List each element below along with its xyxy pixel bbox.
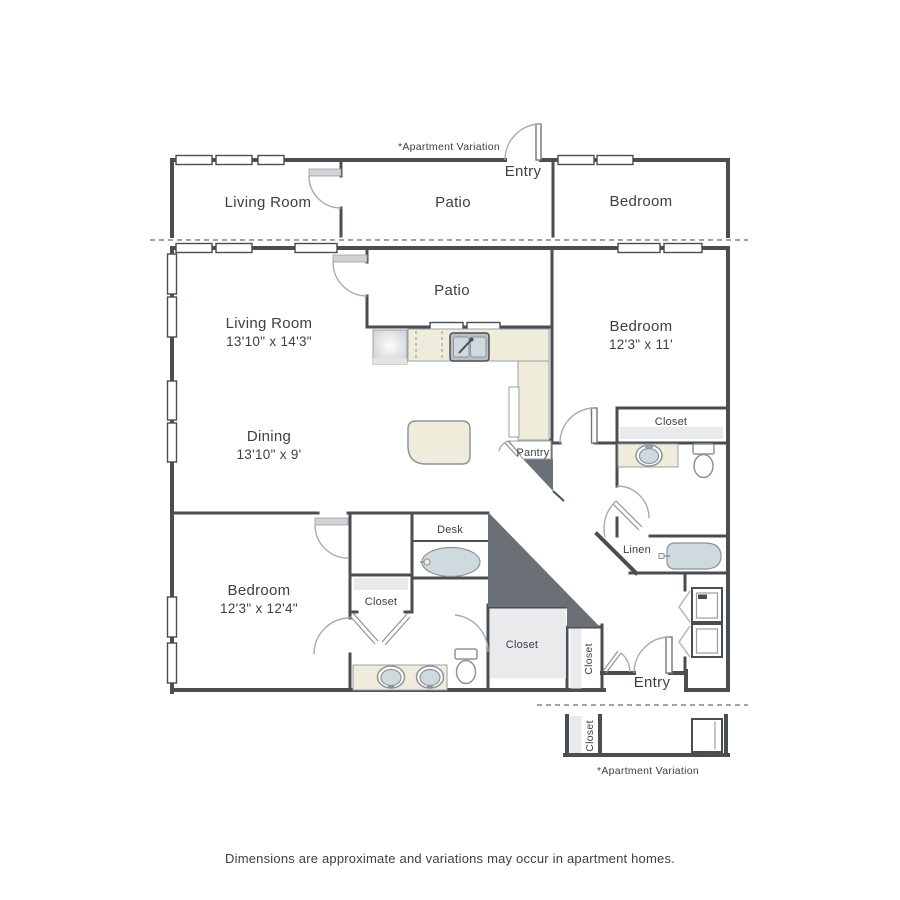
toilet-right	[693, 444, 714, 478]
refrigerator-handle	[373, 358, 407, 364]
dining-label: Dining	[247, 428, 291, 445]
walk-in-closet-door	[455, 615, 488, 652]
variation-closet-shelf	[570, 716, 582, 753]
dryer	[692, 624, 722, 657]
toilet-left	[455, 649, 477, 684]
entry-door	[634, 637, 672, 673]
hall-bathtub	[659, 543, 721, 569]
bedroom-right-dims: 12'3" x 11'	[609, 337, 673, 352]
entry-label: Entry	[634, 674, 671, 691]
patio-label-variation: Patio	[435, 194, 471, 211]
variation-washer	[692, 719, 722, 752]
kitchen-sink	[450, 333, 489, 361]
desk-label: Desk	[437, 524, 463, 536]
living-room-dims: 13'10" x 14'3"	[226, 334, 312, 349]
footer-disclaimer: Dimensions are approximate and variation…	[225, 851, 675, 866]
dining-table	[408, 421, 470, 464]
closet-rod-bedroom-right	[620, 427, 723, 439]
floor-plan-svg: *Apartment Variation Entry Living Room P…	[0, 0, 900, 900]
variation-top-note: *Apartment Variation	[398, 141, 500, 153]
oven	[509, 387, 519, 437]
kitchen-counter-side	[518, 361, 549, 440]
washer	[692, 588, 722, 622]
entry-label-variation: Entry	[505, 163, 542, 180]
bathroom-left	[353, 548, 480, 691]
patio-door-variation	[309, 169, 341, 208]
variation-bottom: Closet *Apartment Variation	[565, 716, 728, 777]
variation-bottom-note: *Apartment Variation	[597, 765, 699, 777]
variation-top: *Apartment Variation Entry Living Room P…	[172, 124, 728, 236]
bedroom-left-label: Bedroom	[228, 582, 291, 599]
bath-left-door	[314, 618, 350, 654]
laundry-closet	[679, 588, 722, 657]
patio-door	[333, 255, 367, 296]
bedroom-left-door	[315, 518, 348, 558]
bedroom-right-label: Bedroom	[610, 318, 673, 335]
entry-door-variation	[505, 124, 541, 160]
floor-plan-page: *Apartment Variation Entry Living Room P…	[0, 0, 900, 900]
closet-rod-bedroom-left	[354, 578, 408, 590]
closet-bedroom-left-label: Closet	[365, 596, 397, 608]
bathroom-right	[617, 444, 714, 518]
pantry-label: Pantry	[517, 447, 550, 459]
closet-double-doors	[350, 613, 410, 645]
hall-closet-door	[603, 651, 630, 673]
dining-dims: 13'10" x 9'	[236, 447, 301, 462]
living-room-label-variation: Living Room	[225, 194, 312, 211]
linen-closet	[604, 501, 642, 537]
closet-variation-label: Closet	[584, 720, 596, 752]
faucet-right	[645, 445, 653, 449]
bedroom-right-suite	[560, 408, 723, 518]
pantry-wall-line	[553, 491, 564, 501]
bedroom-label-variation: Bedroom	[610, 193, 673, 210]
bedroom-right-door	[560, 408, 597, 443]
closet-walk-in-label: Closet	[506, 639, 538, 651]
living-room-label: Living Room	[226, 315, 313, 332]
patio-label: Patio	[434, 282, 470, 299]
linen-label: Linen	[623, 544, 651, 556]
bedroom-left-dims: 12'3" x 12'4"	[220, 601, 298, 616]
pantry-wall-fill	[523, 459, 553, 491]
hall-closet-shelf	[571, 629, 582, 689]
soaking-tub	[422, 548, 480, 577]
main-unit: Patio Living Room 13'10" x 14'3" Bedroom…	[168, 244, 729, 693]
closet-hall-label: Closet	[583, 643, 595, 675]
closet-bedroom-right-label: Closet	[655, 416, 687, 428]
bifold-door-marks	[679, 591, 690, 657]
